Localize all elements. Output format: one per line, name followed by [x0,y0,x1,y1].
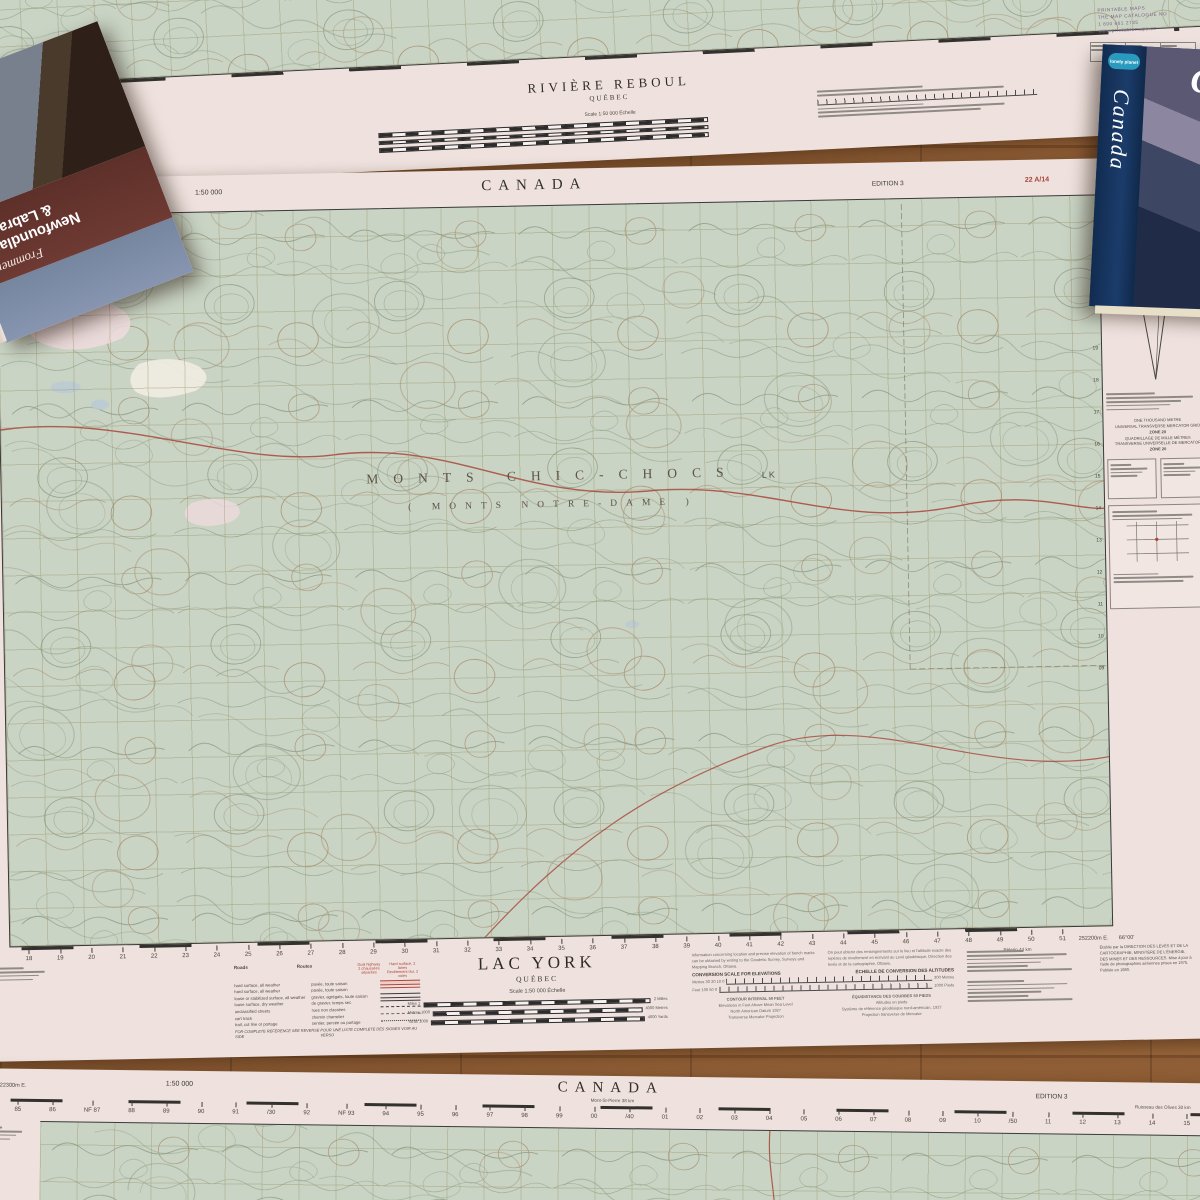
main-corner-longitude: 66°00' [1119,935,1135,941]
lonely-planet-guidebook: lonely planet Canada Can [1089,44,1200,313]
road-legend: Roads Routes Dual highway2 chaussées sép… [234,962,421,1040]
bottom-header-edition: EDITION 3 [1036,1093,1068,1100]
lonely-planet-cover-title: Can [1190,63,1200,104]
sample-grid-diagram [1112,521,1200,567]
metres-right-label: 4000 Metres [645,1005,667,1011]
main-header-sheet-number: 22 A/14 [1025,176,1049,183]
bottom-sheet-map-area [39,1121,1200,1200]
lonely-planet-logo-text: lonely planet [1110,58,1138,64]
bench-note-en: Information concerning location and prec… [692,950,818,970]
grid-ref-box-1 [1107,458,1157,499]
legend-red-note-a: Dual highway2 chaussées séparées [353,962,386,979]
bottom-map-sheet: 722300m E. 1:50 000 CANADA EDITION 3 Mon… [0,1068,1200,1200]
miles-right-label: 2 Milles [654,996,668,1002]
metres-left-label: Metres 1000 [408,1010,430,1016]
main-map-sheet-lac-york: 1:50 000 CANADA EDITION 3 22 A/14 [0,156,1200,1062]
main-header-edition: EDITION 3 [872,180,904,188]
miles-left-label: Miles 1 [407,1001,420,1007]
declination-note [1106,392,1200,411]
conversion-title-en: CONVERSION SCALE FOR ELEVATIONS [692,971,781,978]
photo-of-map-sheets: RIVIÈRE REBOUL QUÉBEC Scale 1:50 000 Éch… [0,0,1200,1200]
conversion-title-fr: ÉCHELLE DE CONVERSION DES ALTITUDES [855,968,954,975]
main-corner-coord: 252200m E. [1079,935,1109,942]
printable-maps-stamp: PRINTABLE MAPS THE MAP CATALOGUE NO 1 80… [1097,4,1168,35]
legend-footer-en: FOR COMPLETE REFERENCE SEE REVERSE SIDE [235,1028,321,1040]
grid-ref-box-2 [1160,457,1200,498]
bottom-label-right: Ruisseau des Olives 30 km [1135,1104,1191,1110]
credits-block: Établie par la DIRECTION DES LEVÉS ET DE… [1100,943,1193,974]
coordinate-tables [967,947,1086,1004]
main-bottom-margin: 1819202122232425262728293031323334353637… [0,924,1200,1062]
bottom-label-left: Mont-St-Pierre 38 km [591,1098,635,1104]
conv-metres-right: 300 Metres [934,975,954,981]
conversion-block: Information concerning location and prec… [692,947,955,1021]
legend-head-en: Roads [234,964,297,981]
legend-head-fr: Routes [297,963,353,980]
yards-right-label: 4000 Yards [648,1014,668,1020]
main-title-block: LAC YORK QUÉBEC Scale 1:50 000 Échelle M… [407,951,668,1026]
lonely-planet-spine-title: Canada [1104,89,1134,172]
bench-note-fr: On peut obtenir des renseignements sur l… [828,947,954,967]
proj-en: Transverse Mercator Projection [693,1013,819,1021]
left-imprint [0,965,54,983]
conv-metres-left: Metres 30 20 10 0 [692,979,724,985]
road-legend-rows: hard surface, all weatherpavée, toute sa… [234,979,421,1027]
lonely-planet-logo: lonely planet [1108,53,1141,71]
legend-footer-fr: POUR UNE LISTE COMPLÈTE DES SIGNES VOIR … [320,1026,421,1038]
conv-feet-right: 1000 Pieds [934,983,954,989]
sample-reference-box [1108,503,1200,609]
yards-left-label: Yards 1000 [408,1019,428,1025]
main-map-area: MONTS CHIC-CHOCS ( MONTS NOTRE-DAME ) LK… [0,194,1113,947]
conv-feet-left: Feet 100 50 0 [692,987,717,993]
bottom-sheet-left-margin [0,1124,30,1142]
map-label-lk: LK [762,470,777,480]
